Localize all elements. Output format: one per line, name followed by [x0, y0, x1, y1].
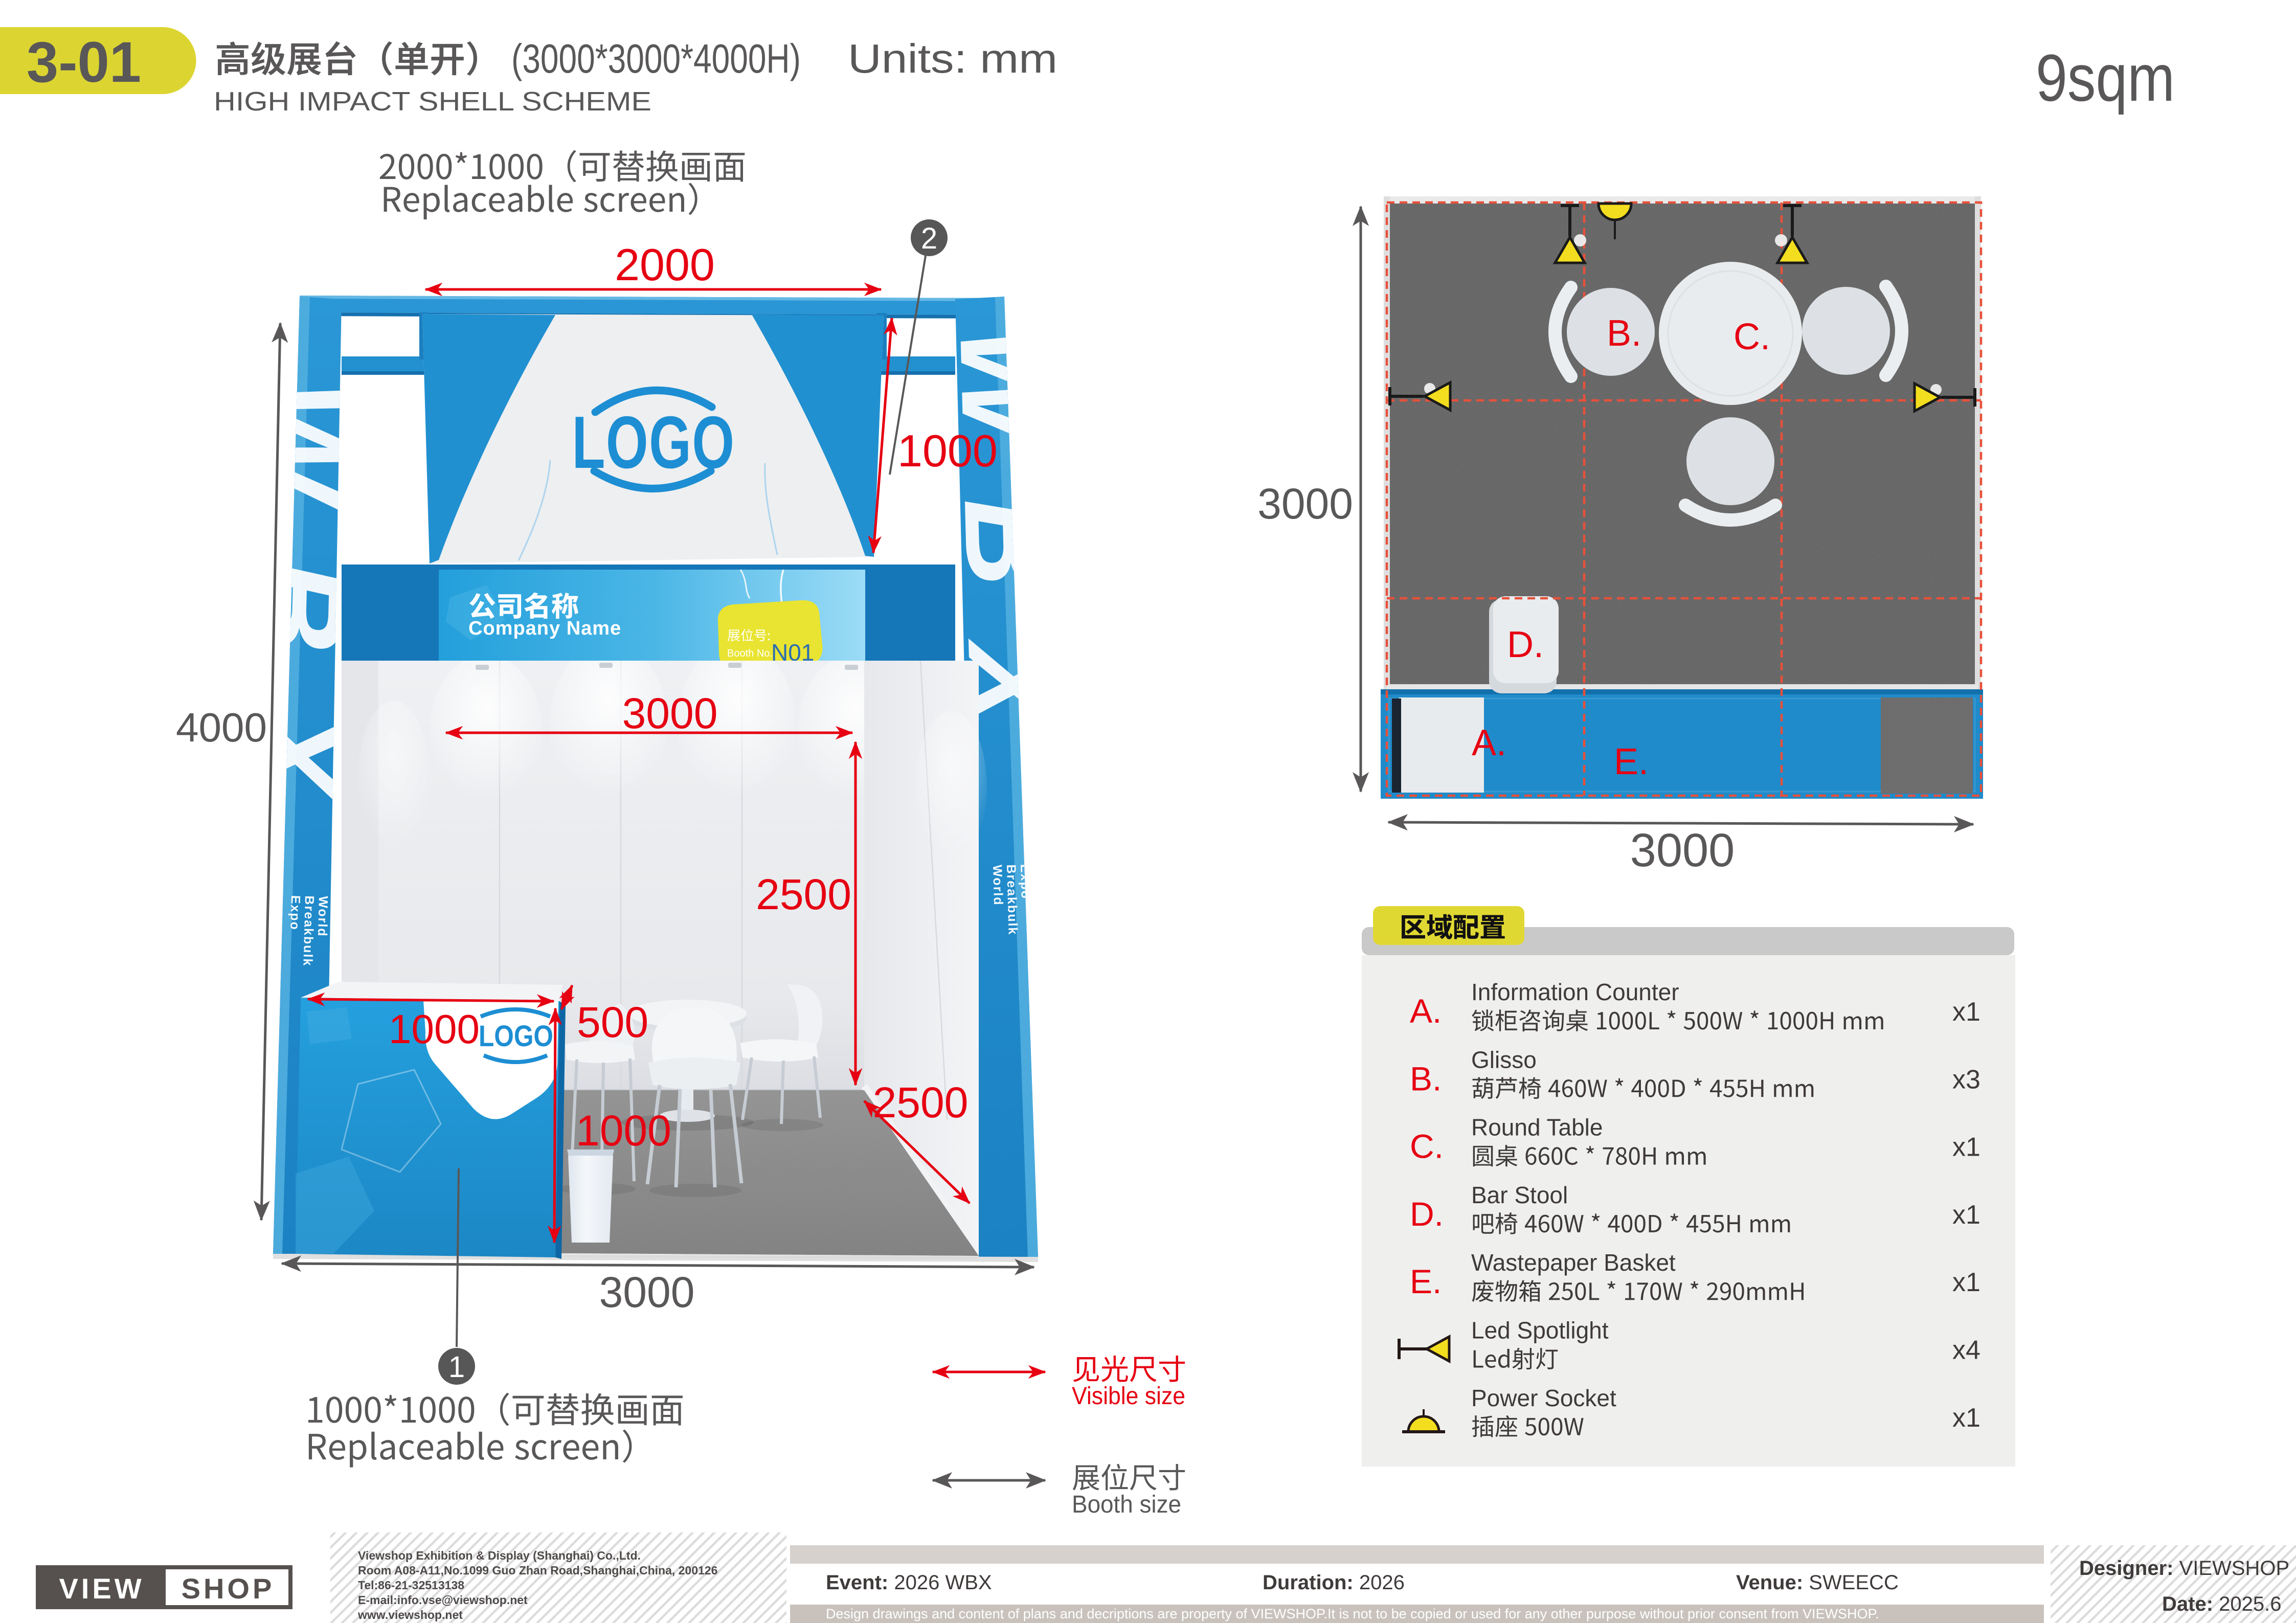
- svg-text:Duration: 2026: Duration: 2026: [1263, 1571, 1405, 1594]
- svg-text:Viewshop Exhibition & Display: Viewshop Exhibition & Display (Shanghai)…: [358, 1549, 641, 1562]
- svg-text:Date: 2025.6: Date: 2025.6: [2162, 1593, 2282, 1615]
- svg-text:3000: 3000: [1630, 824, 1735, 876]
- svg-text:x1: x1: [1952, 997, 1980, 1027]
- svg-text:C.: C.: [1734, 317, 1770, 357]
- svg-text:Visible size: Visible size: [1072, 1383, 1185, 1410]
- svg-text:C.: C.: [1410, 1128, 1444, 1165]
- svg-text:E-mail:info.vse@viewshop.net: E-mail:info.vse@viewshop.net: [358, 1593, 528, 1607]
- svg-text:Bar Stool: Bar Stool: [1471, 1182, 1568, 1208]
- svg-text:World: World: [315, 896, 330, 937]
- svg-text:x4: x4: [1952, 1336, 1980, 1365]
- svg-text:www.viewshop.net: www.viewshop.net: [357, 1608, 463, 1621]
- svg-text:A.: A.: [1472, 723, 1506, 763]
- svg-text:E.: E.: [1410, 1263, 1442, 1300]
- svg-text:Round Table: Round Table: [1471, 1114, 1603, 1141]
- svg-text:Designer: VIEWSHOP: Designer: VIEWSHOP: [2079, 1557, 2289, 1580]
- svg-text:3000: 3000: [599, 1268, 695, 1316]
- svg-text:Booth size: Booth size: [1072, 1491, 1181, 1518]
- svg-text:Glisso: Glisso: [1471, 1046, 1537, 1073]
- svg-text:Company Name: Company Name: [468, 618, 621, 639]
- svg-text:3000: 3000: [622, 689, 718, 737]
- svg-text:1: 1: [448, 1350, 465, 1384]
- svg-text:Expo: Expo: [287, 895, 303, 931]
- svg-text:x1: x1: [1952, 1133, 1980, 1162]
- svg-text:Wastepaper Basket: Wastepaper Basket: [1471, 1249, 1676, 1276]
- svg-text:Design drawings and content of: Design drawings and content of plans and…: [826, 1606, 1879, 1621]
- svg-text:Units: mm: Units: mm: [848, 36, 1057, 81]
- svg-text:SHOP: SHOP: [182, 1572, 275, 1605]
- svg-text:E.: E.: [1614, 741, 1649, 782]
- svg-text:1000: 1000: [576, 1107, 671, 1155]
- svg-text:Event: 2026 WBX: Event: 2026 WBX: [826, 1571, 992, 1594]
- svg-text:Information Counter: Information Counter: [1471, 979, 1679, 1005]
- svg-text:LOGO: LOGO: [479, 1020, 553, 1053]
- svg-text:Led Spotlight: Led Spotlight: [1471, 1317, 1609, 1344]
- svg-text:VIEW: VIEW: [59, 1572, 144, 1605]
- svg-text:B.: B.: [1607, 313, 1641, 354]
- svg-text:x3: x3: [1952, 1065, 1980, 1094]
- svg-text:Breakbulk: Breakbulk: [1004, 864, 1020, 936]
- svg-text:2: 2: [921, 222, 937, 255]
- svg-text:x1: x1: [1952, 1403, 1980, 1433]
- svg-text:B.: B.: [1410, 1060, 1442, 1097]
- svg-text:Power Socket: Power Socket: [1471, 1385, 1616, 1411]
- svg-text:9sqm: 9sqm: [2036, 40, 2175, 115]
- svg-text:x1: x1: [1952, 1200, 1980, 1230]
- svg-text:World: World: [990, 865, 1005, 906]
- svg-text:3000: 3000: [1257, 480, 1353, 528]
- svg-text:D.: D.: [1507, 624, 1544, 665]
- svg-text:Venue: SWEECC: Venue: SWEECC: [1736, 1571, 1899, 1594]
- svg-text:2000: 2000: [615, 239, 715, 290]
- svg-text:x1: x1: [1952, 1268, 1980, 1297]
- svg-text:2500: 2500: [756, 870, 851, 918]
- svg-text:D.: D.: [1410, 1195, 1444, 1233]
- svg-text:Booth No.: Booth No.: [727, 648, 773, 659]
- svg-text:1000: 1000: [389, 1006, 480, 1052]
- svg-text:4000: 4000: [176, 705, 267, 750]
- svg-text:Tel:86-21-32513138: Tel:86-21-32513138: [358, 1579, 464, 1592]
- svg-text:A.: A.: [1410, 992, 1442, 1030]
- svg-text:500: 500: [577, 998, 648, 1046]
- svg-text:HIGH IMPACT SHELL SCHEME: HIGH IMPACT SHELL SCHEME: [214, 87, 651, 117]
- svg-text:1000: 1000: [897, 425, 998, 476]
- svg-text:(3000*3000*4000H): (3000*3000*4000H): [511, 36, 801, 81]
- svg-text:3-01: 3-01: [27, 30, 141, 94]
- svg-text:2500: 2500: [873, 1078, 969, 1126]
- svg-text:Room A08-A11,No.1099 Guo Zhan: Room A08-A11,No.1099 Guo Zhan Road,Shang…: [358, 1564, 717, 1577]
